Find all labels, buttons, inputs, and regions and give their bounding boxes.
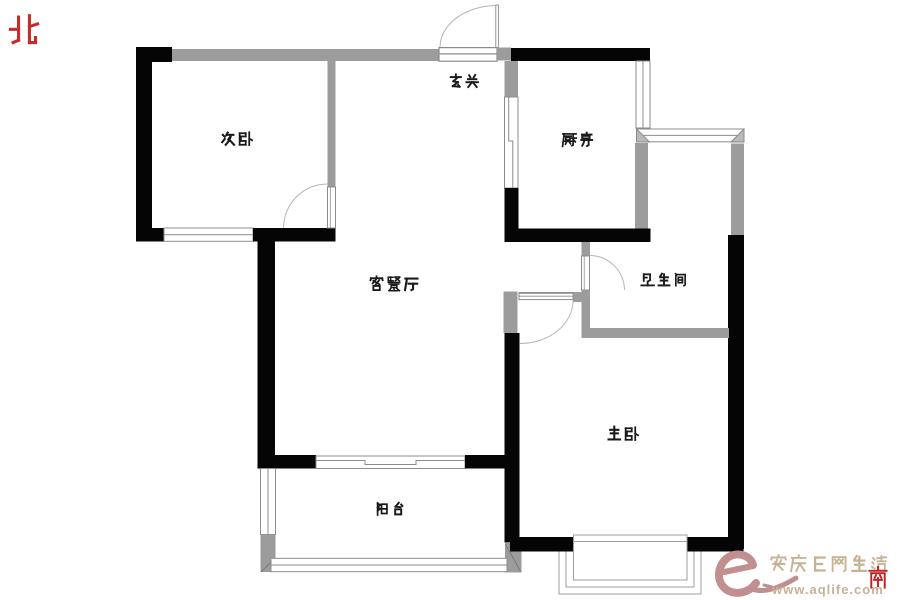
svg-text:www.aqlife.com: www.aqlife.com [771,582,884,597]
